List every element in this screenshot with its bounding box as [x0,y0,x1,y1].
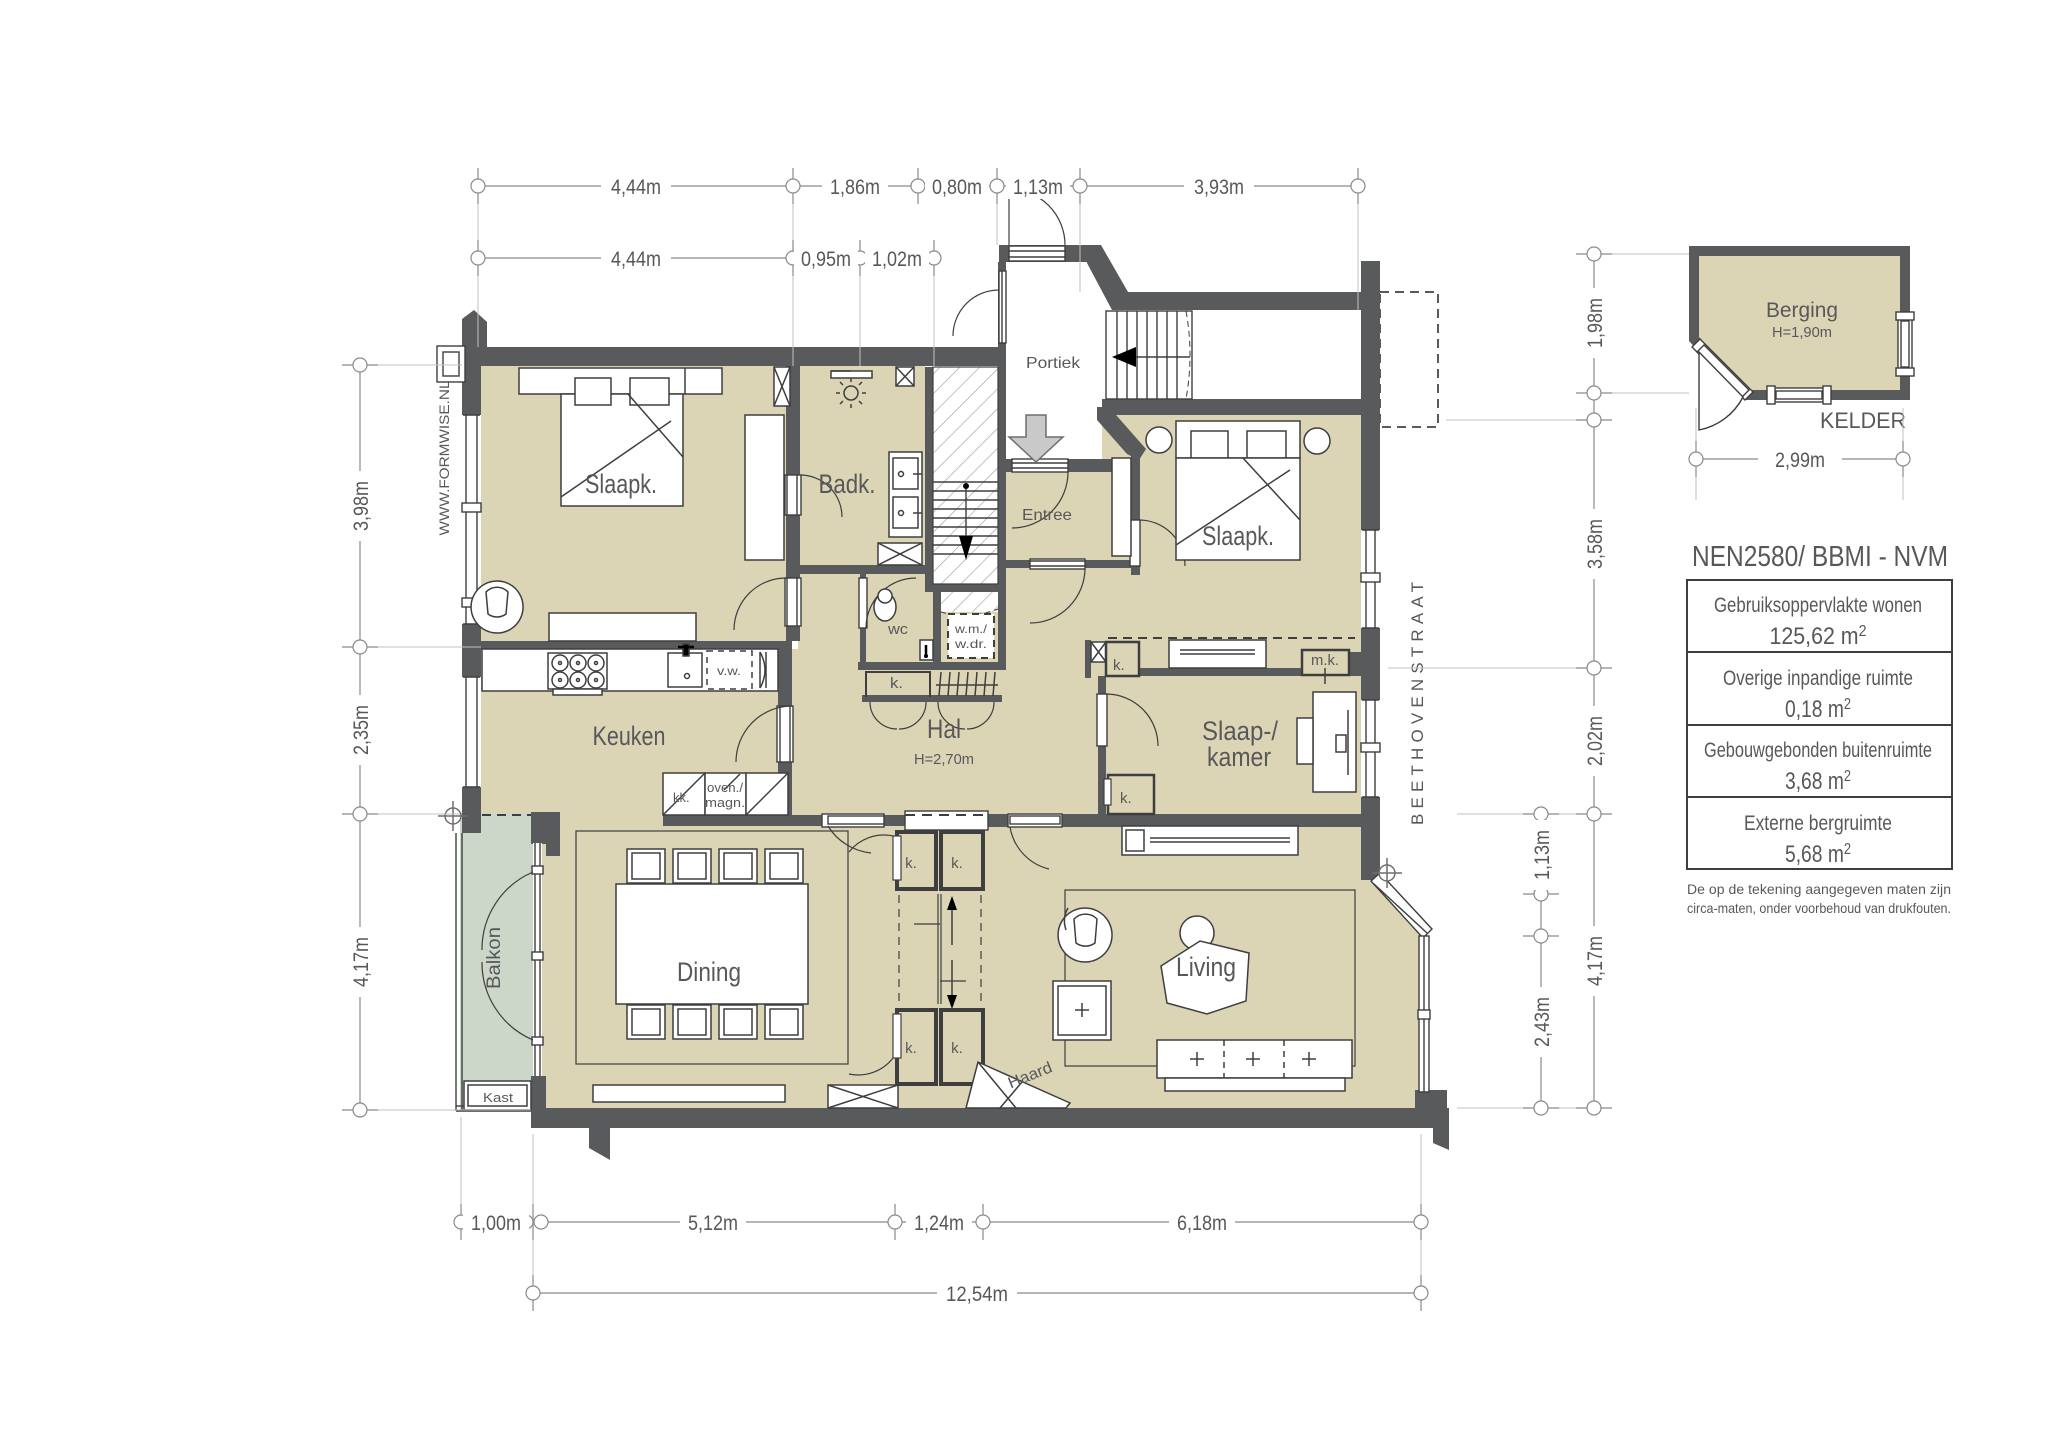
svg-text:H=1,90m: H=1,90m [1772,324,1832,341]
svg-text:4,44m: 4,44m [611,176,661,199]
svg-text:5,12m: 5,12m [688,1212,738,1235]
svg-text:circa-maten, onder voorbehoud: circa-maten, onder voorbehoud van drukfo… [1687,900,1951,916]
svg-text:Slaapk.: Slaapk. [585,469,657,499]
svg-text:4,17m: 4,17m [350,937,373,987]
svg-text:De op de tekening aangegeven m: De op de tekening aangegeven maten zijn [1687,881,1951,897]
svg-text:1,98m: 1,98m [1584,298,1607,348]
svg-text:oven./: oven./ [707,780,743,795]
svg-text:k.: k. [905,1040,917,1057]
svg-text:Hal: Hal [927,714,961,744]
svg-text:Portiek: Portiek [1026,355,1081,372]
svg-text:Living: Living [1176,952,1236,982]
svg-text:magn.: magn. [705,795,745,810]
svg-text:k.: k. [951,1040,963,1057]
svg-text:NEN2580/ BBMI - NVM: NEN2580/ BBMI - NVM [1692,541,1948,573]
svg-text:kamer: kamer [1207,742,1271,772]
svg-text:Gebruiksoppervlakte wonen: Gebruiksoppervlakte wonen [1714,594,1922,617]
svg-text:v.w.: v.w. [717,664,741,678]
svg-text:m.k.: m.k. [1311,652,1339,669]
svg-text:0,95m: 0,95m [801,248,851,271]
svg-text:Balkon: Balkon [484,927,505,989]
svg-text:k.: k. [951,855,963,872]
svg-text:k.: k. [890,675,903,692]
svg-text:5,68 m2: 5,68 m2 [1785,841,1851,868]
svg-text:Keuken: Keuken [593,721,666,751]
svg-text:BEETHOVENSTRAAT: BEETHOVENSTRAAT [1408,577,1427,825]
svg-text:2,02m: 2,02m [1584,716,1607,766]
svg-text:Gebouwgebonden buitenruimte: Gebouwgebonden buitenruimte [1704,739,1932,762]
svg-text:k.: k. [1113,657,1125,674]
svg-text:Badk.: Badk. [819,469,876,499]
svg-text:w.dr.: w.dr. [954,637,987,651]
svg-text:k.: k. [905,855,917,872]
svg-text:Entree: Entree [1022,507,1072,524]
svg-text:1,02m: 1,02m [872,248,922,271]
svg-text:Berging: Berging [1766,299,1838,322]
svg-text:2,43m: 2,43m [1531,997,1554,1047]
svg-text:12,54m: 12,54m [946,1283,1008,1306]
svg-text:Overige inpandige ruimte: Overige inpandige ruimte [1723,667,1913,690]
svg-text:1,13m: 1,13m [1531,830,1554,880]
svg-text:6,18m: 6,18m [1177,1212,1227,1235]
svg-text:KELDER: KELDER [1820,408,1906,433]
svg-text:0,18 m2: 0,18 m2 [1785,696,1851,723]
svg-text:3,68 m2: 3,68 m2 [1785,768,1851,795]
svg-text:Dining: Dining [677,957,741,987]
svg-text:WWW.FORMWISE.NL: WWW.FORMWISE.NL [436,380,452,535]
svg-text:Externe bergruimte: Externe bergruimte [1744,812,1892,835]
svg-text:3,58m: 3,58m [1584,519,1607,569]
svg-text:w.m./: w.m./ [954,622,988,636]
svg-text:H=2,70m: H=2,70m [914,751,974,768]
svg-text:k.: k. [1120,790,1132,807]
svg-text:0,80m: 0,80m [932,176,982,199]
svg-text:Kast: Kast [483,1090,513,1105]
svg-text:1,86m: 1,86m [830,176,880,199]
svg-text:Slaapk.: Slaapk. [1202,521,1274,551]
svg-text:3,93m: 3,93m [1194,176,1244,199]
svg-text:1,24m: 1,24m [914,1212,964,1235]
svg-text:2,35m: 2,35m [350,705,373,755]
svg-text:4,17m: 4,17m [1584,936,1607,986]
svg-text:125,62 m2: 125,62 m2 [1770,623,1867,650]
svg-text:1,13m: 1,13m [1013,176,1063,199]
svg-text:kk.: kk. [673,790,690,805]
svg-text:3,98m: 3,98m [350,481,373,531]
svg-text:4,44m: 4,44m [611,248,661,271]
svg-text:2,99m: 2,99m [1775,449,1825,472]
svg-text:1,00m: 1,00m [471,1212,521,1235]
svg-text:wc: wc [887,621,909,638]
